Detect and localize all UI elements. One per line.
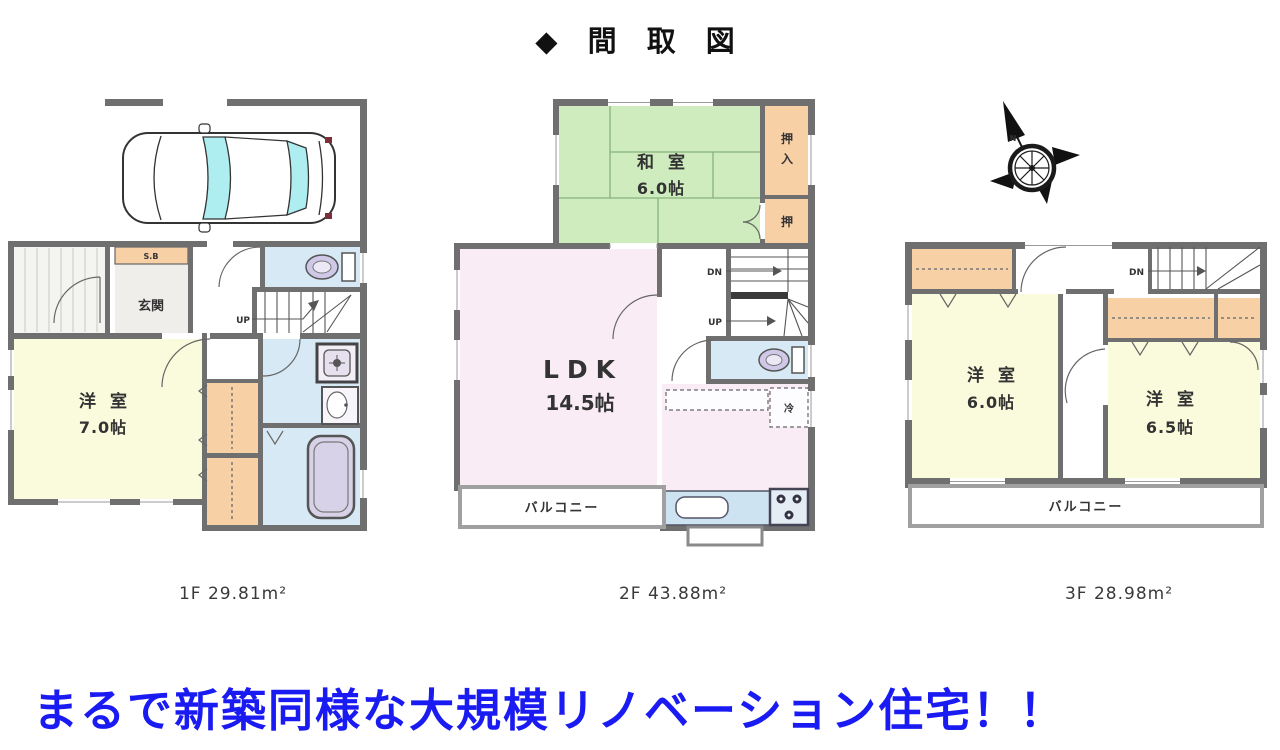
floor-plan-2f: 和 室 6.0帖 押 入 押 LDK 14.5帖 冷 バルコニー DN UP bbox=[450, 95, 830, 560]
washing-machine-icon bbox=[317, 344, 357, 382]
genkan-label: 玄関 bbox=[138, 298, 164, 314]
rooms-2f bbox=[460, 106, 808, 525]
dn-label-3f: DN bbox=[1129, 268, 1144, 278]
kitchen-sink-icon bbox=[662, 491, 770, 525]
page-title: ◆ 間 取 図 bbox=[0, 18, 1280, 60]
room3f-2-name-label: 洋 室 bbox=[1146, 389, 1198, 410]
toilet-icon-1f bbox=[306, 253, 355, 281]
stove-icon bbox=[770, 489, 808, 525]
up-label-1f: UP bbox=[236, 316, 250, 326]
toilet-icon-2f bbox=[759, 347, 804, 373]
compass-n-label: N bbox=[1010, 134, 1017, 143]
stairs-icon-1f bbox=[252, 292, 351, 333]
oshiire-closet bbox=[765, 106, 808, 195]
fridge-label: 冷 bbox=[784, 402, 794, 415]
western-room-65 bbox=[1108, 342, 1260, 478]
washitsu-room bbox=[559, 106, 760, 243]
room1f-size-label: 7.0帖 bbox=[79, 418, 127, 437]
dn-label-2f: DN bbox=[707, 268, 722, 278]
washitsu-name-label: 和 室 bbox=[637, 152, 689, 173]
stairs-icon-2f bbox=[726, 249, 808, 336]
floor-plan-3f: N bbox=[900, 95, 1278, 570]
porch-area bbox=[14, 247, 105, 333]
vanity-sink-icon bbox=[322, 387, 358, 424]
floor1-area-label: 1F 29.81m² bbox=[138, 584, 328, 604]
tagline: まるで新築同様な大規模リノベーション住宅！！ bbox=[33, 674, 1066, 739]
ldk-size-label: 14.5帖 bbox=[545, 391, 614, 415]
bathtub-icon bbox=[308, 436, 354, 518]
ldk-name-label: LDK bbox=[543, 355, 623, 384]
up-label-2f: UP bbox=[708, 318, 722, 328]
compass-icon: N bbox=[990, 101, 1080, 204]
balcony-label-3f: バルコニー bbox=[1049, 500, 1124, 515]
floor-plan-1f: 玄関 S.B 洋 室 7.0帖 UP bbox=[5, 95, 375, 545]
stairs-icon-3f bbox=[1148, 247, 1260, 289]
balcony-label-2f: バルコニー bbox=[525, 501, 600, 516]
room3f-1-name-label: 洋 室 bbox=[967, 365, 1019, 386]
floor3-area-label: 3F 28.98m² bbox=[1024, 584, 1214, 604]
room3f-2-size-label: 6.5帖 bbox=[1146, 418, 1194, 437]
bay-step bbox=[688, 527, 762, 545]
room3f-1-size-label: 6.0帖 bbox=[967, 393, 1015, 412]
floor2-area-label: 2F 43.88m² bbox=[578, 584, 768, 604]
rooms-3f bbox=[912, 249, 1260, 478]
oshiire-label-top: 押 bbox=[781, 131, 793, 146]
room1f-name-label: 洋 室 bbox=[79, 391, 131, 412]
oshiire-label-bottom: 入 bbox=[781, 152, 793, 166]
floorplan-page: ◆ 間 取 図 bbox=[0, 0, 1280, 750]
shoebox-label: S.B bbox=[144, 252, 159, 261]
kitchen-counter-dashed bbox=[666, 390, 768, 410]
western-room-6 bbox=[912, 294, 1058, 478]
car-icon bbox=[123, 124, 335, 232]
washitsu-size-label: 6.0帖 bbox=[637, 179, 685, 198]
oshi-label: 押 bbox=[781, 214, 793, 229]
